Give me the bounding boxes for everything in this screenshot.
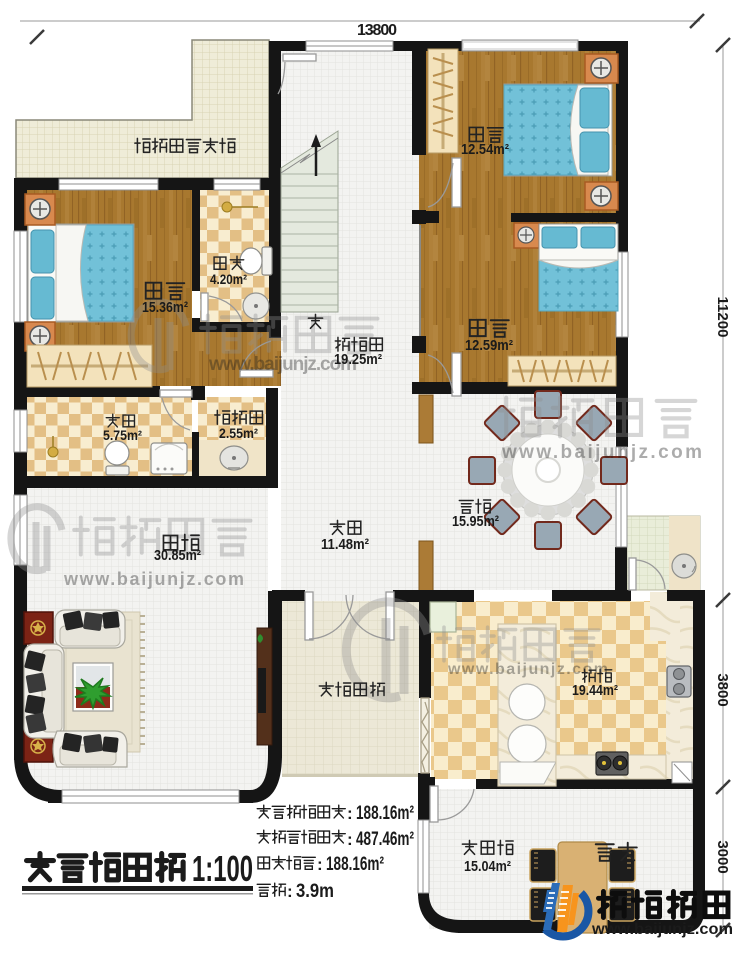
svg-text:www.baijunjz.com: www.baijunjz.com: [591, 921, 733, 938]
svg-text:2.55m²: 2.55m²: [219, 425, 258, 441]
svg-text::: :: [347, 804, 353, 823]
svg-text::: :: [347, 830, 353, 849]
svg-text:30.85m²: 30.85m²: [154, 548, 201, 564]
svg-text:11.48m²: 11.48m²: [321, 536, 369, 553]
svg-text::: :: [317, 855, 323, 874]
svg-text:3800: 3800: [714, 673, 731, 706]
svg-text:12.59m²: 12.59m²: [465, 338, 513, 354]
svg-text:13800: 13800: [357, 22, 397, 39]
svg-text:15.36m²: 15.36m²: [142, 299, 188, 316]
svg-text:www.baijunjz.com: www.baijunjz.com: [447, 661, 608, 678]
svg-text:3.9m: 3.9m: [296, 881, 334, 902]
svg-text:1:100: 1:100: [192, 848, 253, 889]
svg-text:15.95m²: 15.95m²: [452, 513, 499, 530]
svg-text:3000: 3000: [714, 840, 731, 873]
svg-text::: :: [287, 882, 293, 901]
svg-text:4.20m²: 4.20m²: [210, 271, 247, 287]
svg-text:12.54m²: 12.54m²: [461, 142, 509, 158]
svg-text:487.46m²: 487.46m²: [356, 829, 414, 850]
svg-text:11200: 11200: [714, 297, 731, 338]
svg-text:15.04m²: 15.04m²: [464, 859, 511, 875]
svg-text:19.44m²: 19.44m²: [572, 683, 618, 699]
svg-text:188.16m²: 188.16m²: [326, 854, 384, 875]
svg-text:19.25m²: 19.25m²: [334, 352, 382, 368]
svg-text:188.16m²: 188.16m²: [356, 803, 414, 824]
svg-text:5.75m²: 5.75m²: [103, 427, 142, 443]
